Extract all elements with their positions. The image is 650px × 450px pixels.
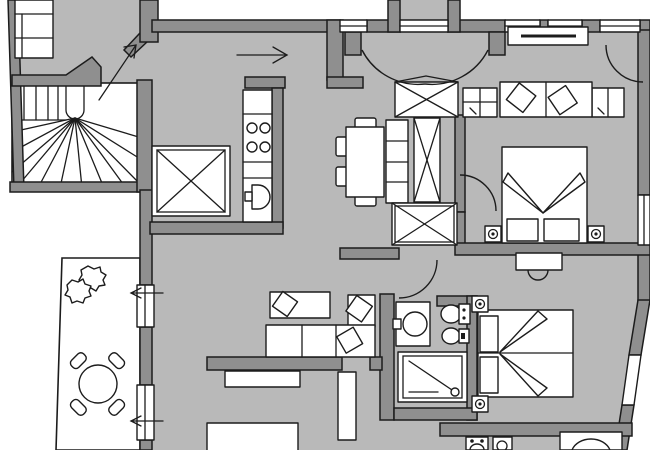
sideboard — [225, 371, 300, 387]
bidet — [493, 437, 512, 450]
stove-burner — [260, 142, 270, 152]
stairwell-area — [12, 83, 143, 189]
wardrobe-x-corridor — [392, 203, 457, 245]
window — [340, 20, 367, 32]
side-cabinet — [592, 88, 624, 117]
kitchen — [243, 90, 272, 222]
french-door-top-right — [600, 20, 640, 32]
stove-burner — [260, 123, 270, 133]
wall-shelving-unit — [15, 0, 53, 58]
balcony-round-table — [79, 365, 117, 403]
bedside-lamp — [485, 226, 501, 242]
vestibule-wall-right — [448, 0, 460, 32]
stove-burner — [247, 142, 257, 152]
bedside-lamp — [472, 396, 488, 412]
balcony-french-door-lower — [137, 385, 154, 440]
washbasin — [393, 302, 430, 346]
bathroom1-south-wall — [394, 408, 477, 420]
west-wall-b — [140, 327, 152, 385]
bedside-lamp — [588, 226, 604, 242]
kitchen-east-wall — [272, 88, 283, 228]
desk-under-window — [508, 27, 588, 45]
north-wall-1 — [152, 20, 340, 32]
entrance-threshold — [400, 20, 448, 32]
double-bed — [478, 310, 573, 397]
bed-pillow — [480, 357, 498, 393]
wardrobe-x-tall — [414, 118, 440, 202]
bedroom1-west-wall — [455, 115, 465, 212]
bedside-lamp — [472, 296, 488, 312]
vestibule-wall-left — [388, 0, 400, 32]
balcony-french-door-upper — [137, 285, 154, 327]
stairwell-south-wall — [10, 182, 146, 192]
entry-hall-shelving — [15, 0, 53, 58]
east-wall-top — [638, 30, 650, 195]
open-door-leaf — [338, 372, 356, 440]
double-bed — [502, 147, 587, 243]
bed-pillow — [507, 219, 538, 241]
hallway-jog-east — [327, 77, 363, 88]
west-wall-c — [140, 440, 152, 450]
west-wall-a — [140, 190, 152, 285]
sofa — [500, 82, 592, 117]
balcony — [56, 258, 140, 450]
double-door-stub-right — [489, 32, 505, 55]
closet-or-lift-box-x — [152, 146, 230, 216]
vestibule-floor — [400, 0, 448, 22]
bed-pillow — [480, 316, 498, 352]
floor-plan-image: Apartment floor plan — [0, 0, 650, 450]
side-cabinet — [463, 88, 497, 117]
stove-burner — [247, 123, 257, 133]
bidet — [442, 328, 469, 344]
toilet — [466, 437, 488, 450]
kitchen-jog — [245, 77, 285, 88]
dining-table — [346, 127, 384, 197]
kitchen-south-wall — [150, 222, 283, 234]
west-wall-mid — [137, 80, 152, 192]
partition-stub — [370, 357, 382, 370]
shower-tray — [398, 352, 467, 402]
rug — [207, 423, 298, 450]
bathtub — [560, 432, 622, 450]
stairwell — [12, 83, 143, 189]
window-east — [638, 195, 650, 245]
double-door-stub-left — [345, 32, 361, 55]
partition-half-wall — [207, 357, 342, 370]
floor-plan-svg: Apartment floor plan — [0, 0, 650, 450]
bed-pillow — [544, 219, 579, 241]
chaise-longue — [270, 291, 330, 318]
toilet — [441, 304, 470, 324]
corridor-south-wall — [340, 248, 399, 259]
